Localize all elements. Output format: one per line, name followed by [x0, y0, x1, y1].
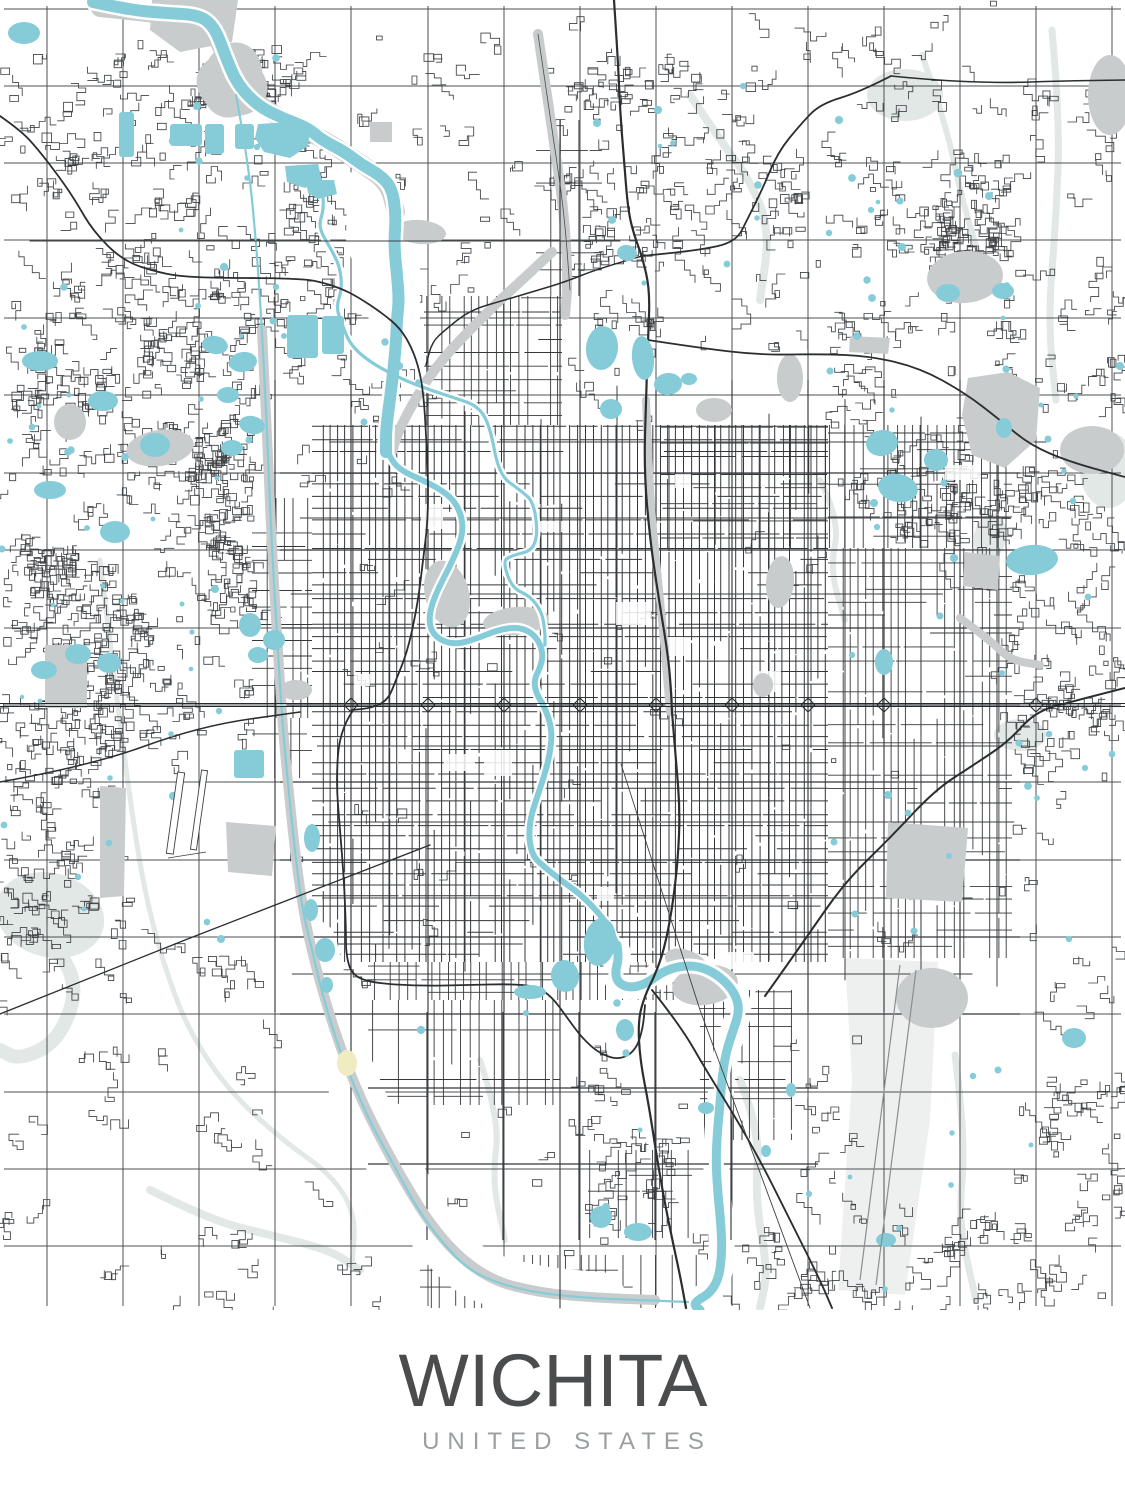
svg-text:WICHITA: WICHITA — [399, 1339, 708, 1422]
svg-text:UNITED STATES: UNITED STATES — [422, 1428, 712, 1455]
